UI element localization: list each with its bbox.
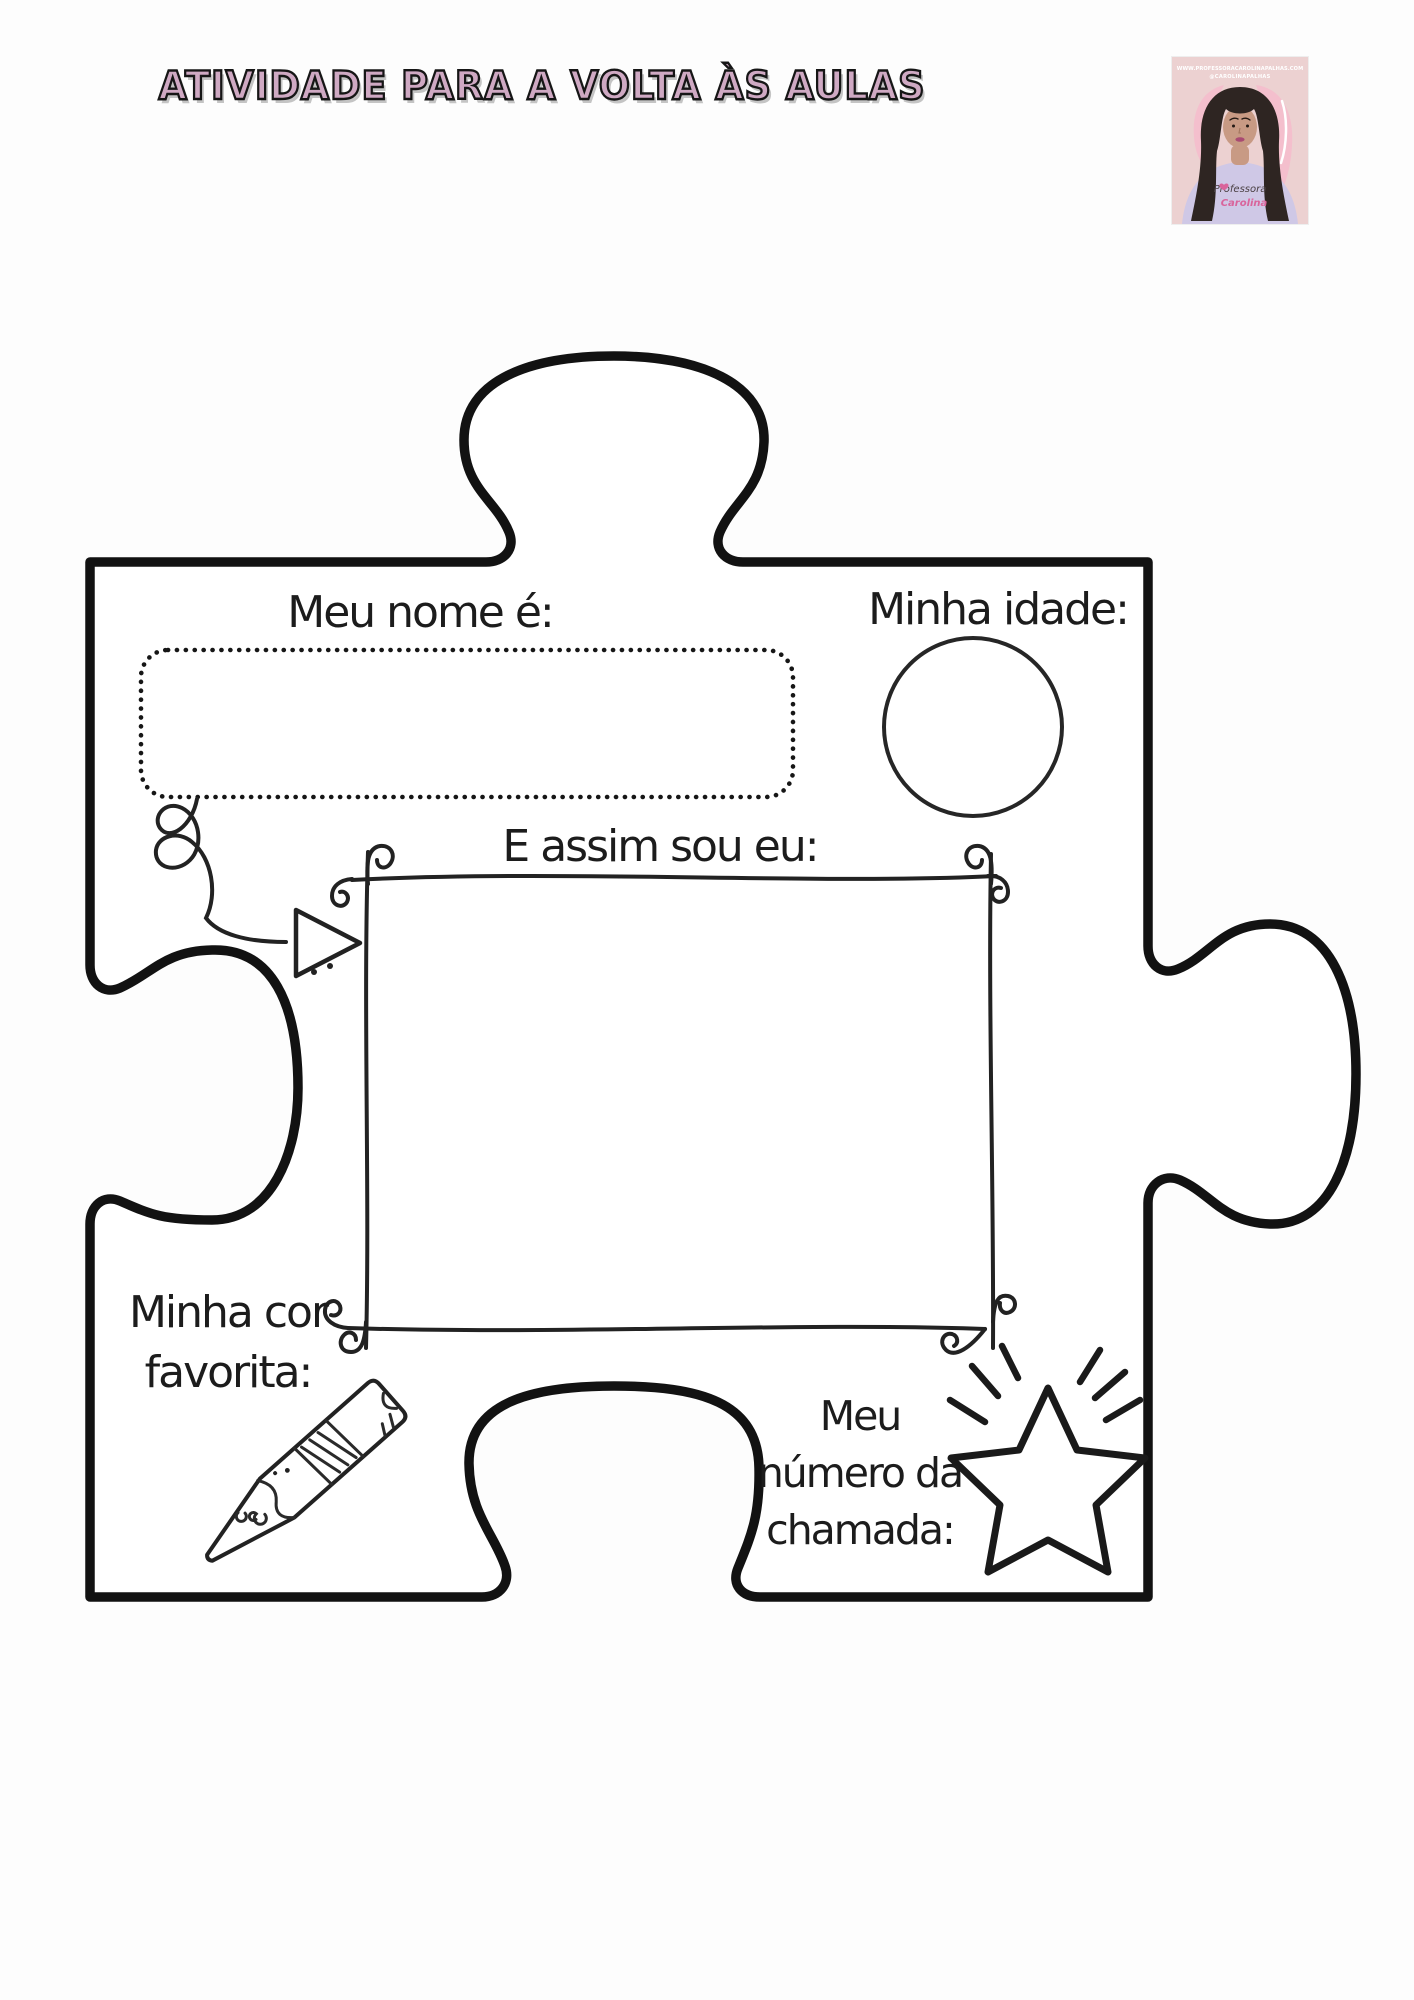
worksheet-page: ATIVIDADE PARA A VOLTA ÀS AULAS xyxy=(0,0,1414,2000)
self-portrait-label: E assim sou eu: xyxy=(460,818,860,875)
favorite-color-label-line1: Minha cor xyxy=(78,1284,378,1341)
favorite-color-label-line2: favorita: xyxy=(78,1344,378,1401)
roll-number-label-line2: número da xyxy=(710,1447,1010,1500)
name-label: Meu nome é: xyxy=(255,584,585,641)
age-input-circle[interactable] xyxy=(884,638,1062,816)
age-label: Minha idade: xyxy=(828,581,1168,638)
roll-number-label-line1: Meu xyxy=(710,1390,1010,1443)
puzzle-worksheet xyxy=(0,0,1414,2000)
roll-number-label-line3: chamada: xyxy=(710,1504,1010,1557)
